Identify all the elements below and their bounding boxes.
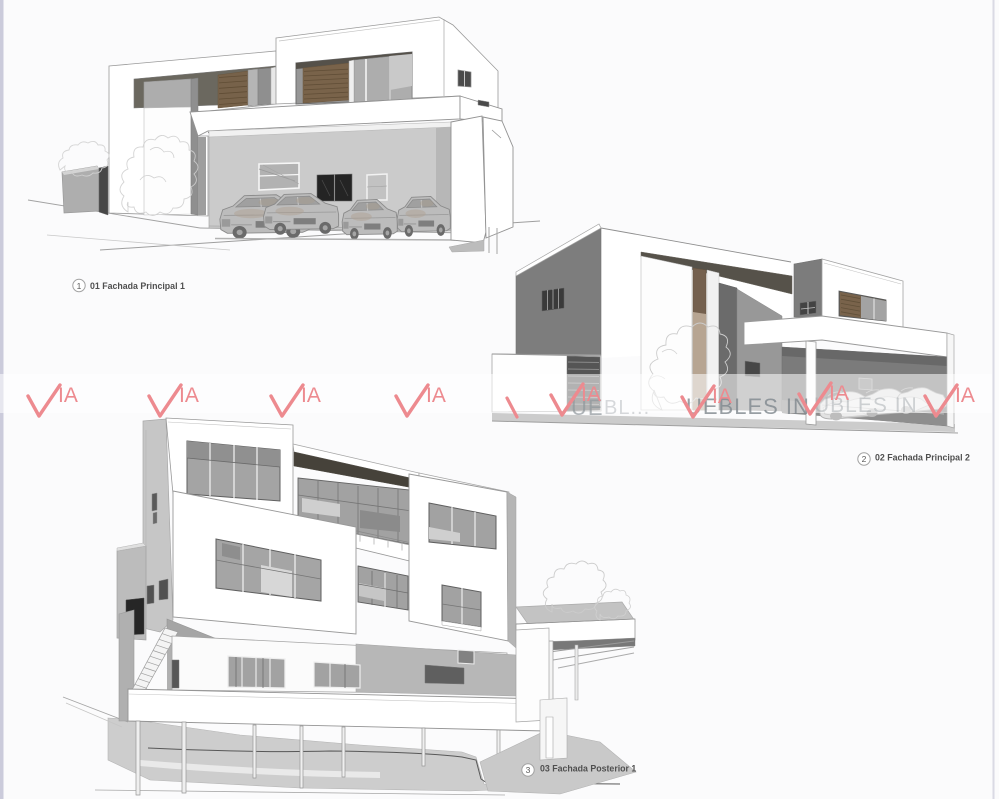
svg-text:IA: IA [955, 384, 975, 407]
svg-text:IA: IA [301, 384, 321, 407]
svg-text:IA: IA [829, 382, 849, 405]
svg-text:IA: IA [712, 385, 732, 408]
svg-text:01 Fachada Principal 1: 01 Fachada Principal 1 [90, 281, 185, 291]
svg-text:IA: IA [179, 384, 199, 407]
svg-text:3: 3 [526, 765, 531, 775]
svg-text:2: 2 [862, 454, 867, 464]
svg-text:IA: IA [426, 384, 446, 407]
svg-text:1: 1 [77, 281, 82, 291]
svg-text:BL...: BL... [604, 397, 650, 419]
svg-text:IA: IA [58, 384, 78, 407]
svg-text:02 Fachada Principal 2: 02 Fachada Principal 2 [875, 453, 970, 463]
svg-text:03 Fachada Posterior 1: 03 Fachada Posterior 1 [540, 764, 636, 774]
svg-text:IA: IA [581, 383, 601, 406]
